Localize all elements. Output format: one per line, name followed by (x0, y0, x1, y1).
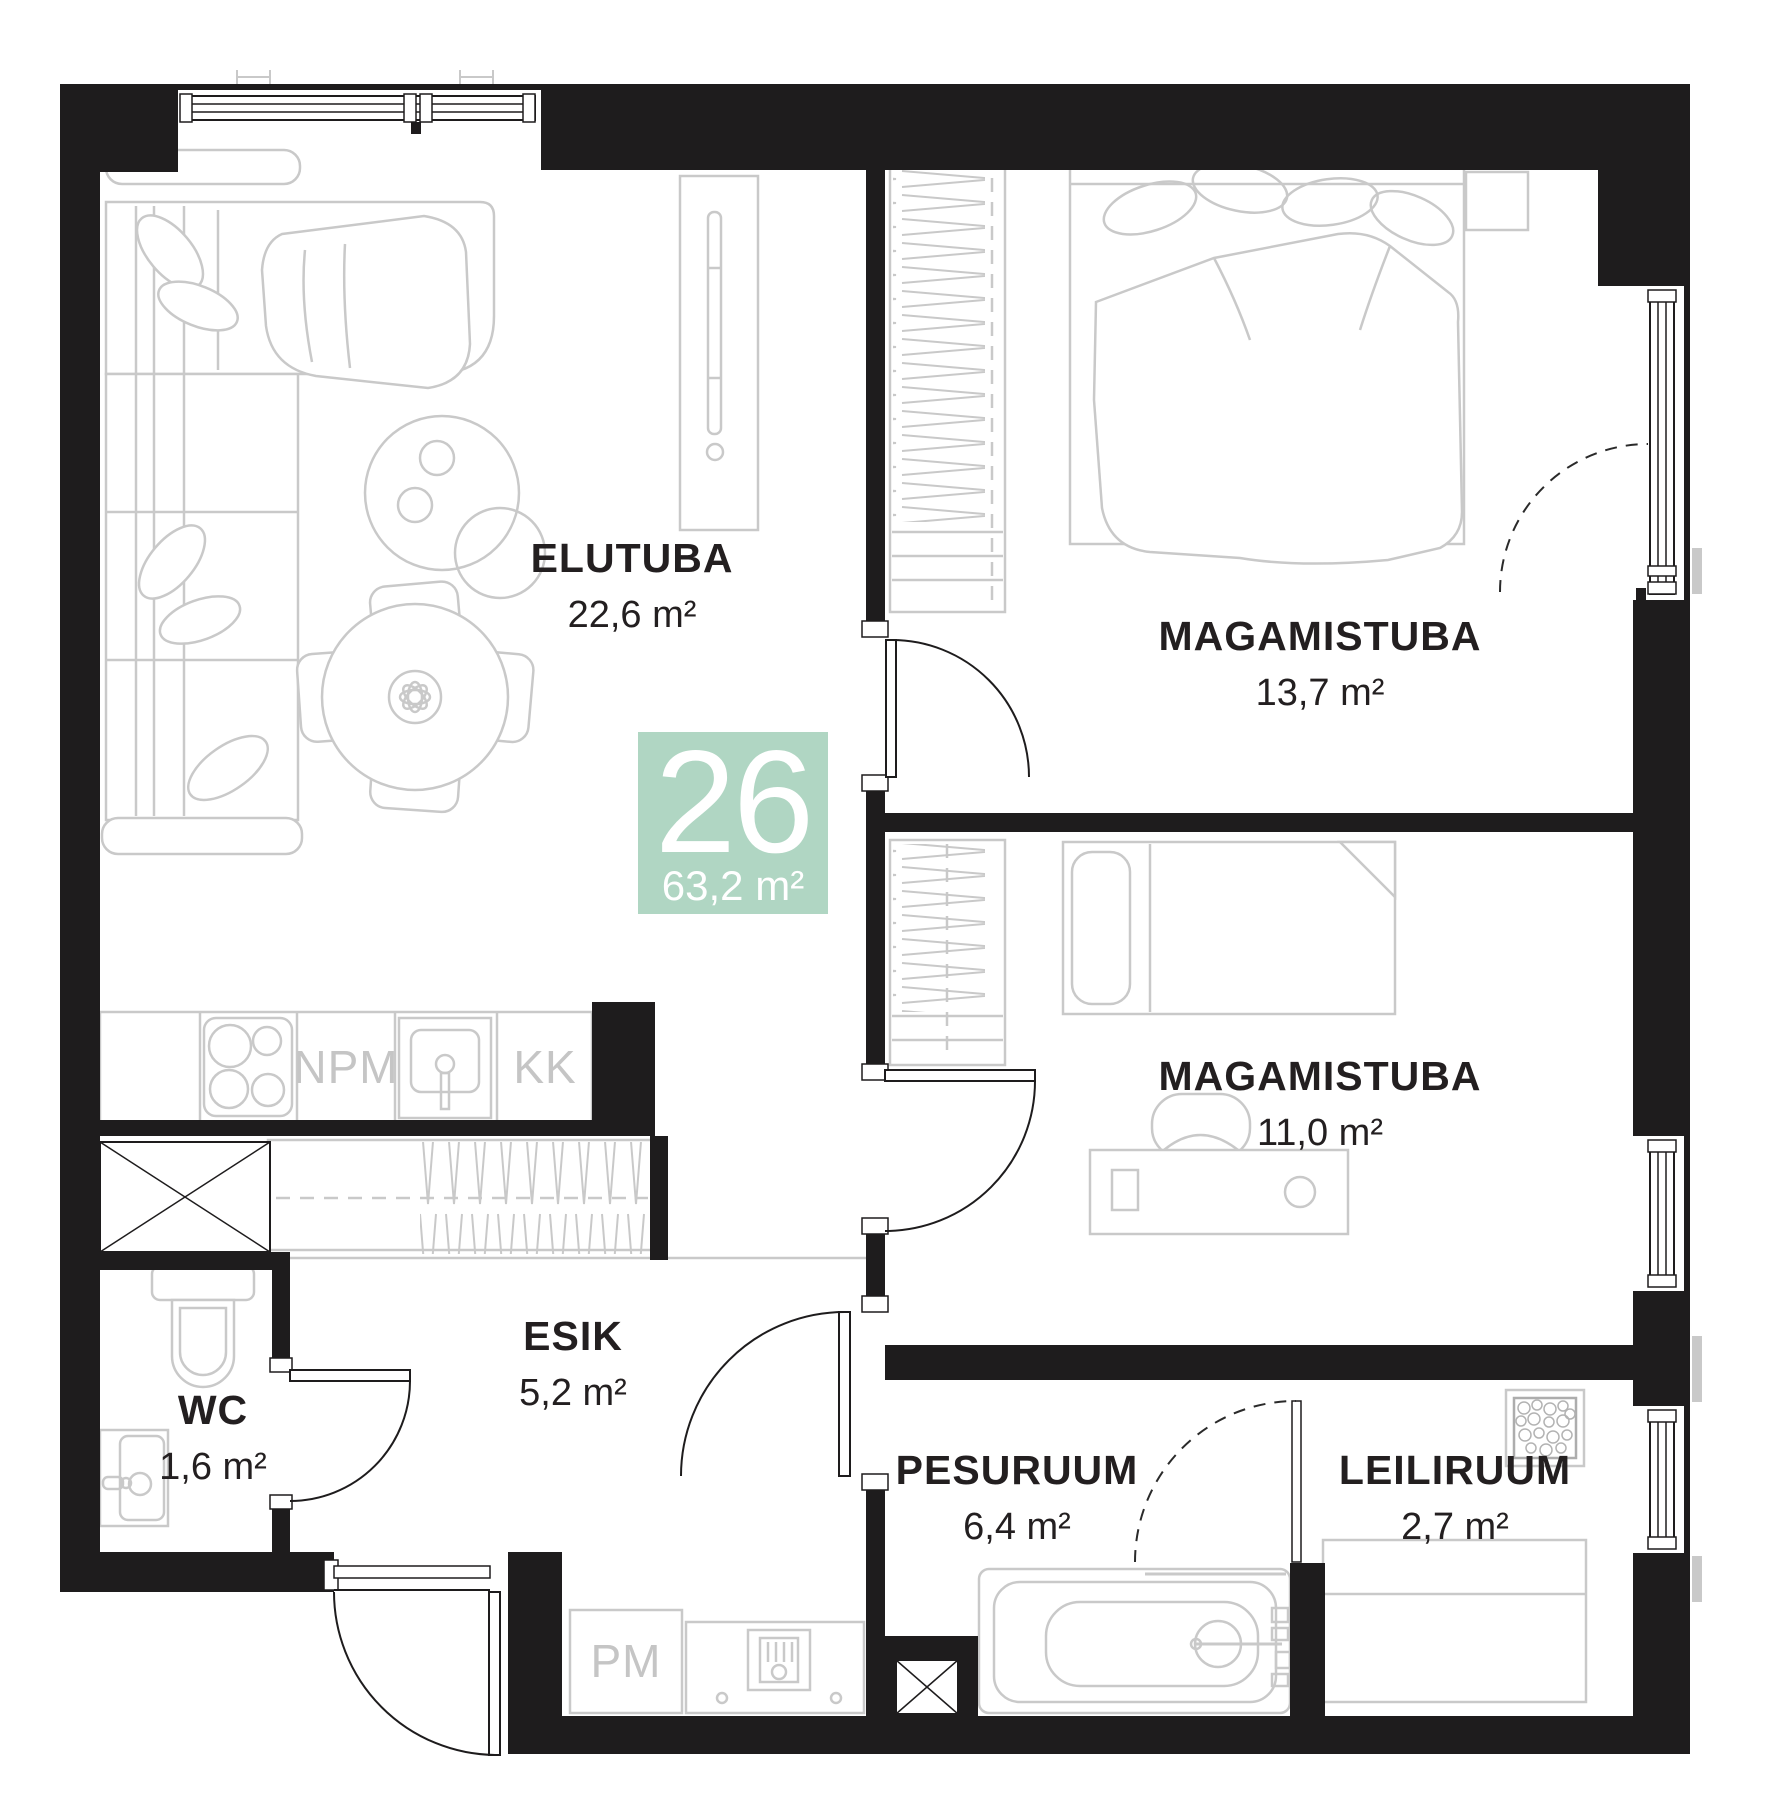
room-area: 5,2 m² (519, 1374, 627, 1412)
room-label-elutuba: ELUTUBA 22,6 m² (531, 538, 734, 634)
bed-bedroom-2 (1063, 842, 1395, 1014)
room-area: 22,6 m² (531, 596, 734, 634)
room-label-wc: WC 1,6 m² (159, 1390, 267, 1486)
door-bedroom-1 (886, 640, 1029, 777)
dining-table (296, 580, 535, 813)
wall-center-b (866, 777, 885, 1080)
wardrobe-bedroom-1 (890, 150, 1005, 612)
room-name: ESIK (519, 1316, 627, 1357)
room-area: 6,4 m² (896, 1508, 1139, 1546)
room-name: MAGAMISTUBA (1158, 616, 1481, 657)
wardrobe-bedroom-2 (890, 840, 1005, 1065)
exterior-wall-stubs (1692, 548, 1702, 1602)
wall-wetroom-divider (885, 1345, 1633, 1380)
room-label-leiliruum: LEILIRUUM 2,7 m² (1339, 1450, 1571, 1546)
wall-bottom-left (60, 1552, 334, 1592)
wall-right-b (1633, 1291, 1690, 1406)
wall-left (60, 84, 100, 1592)
wall-center-d (866, 1476, 885, 1636)
room-name: MAGAMISTUBA (1158, 1056, 1481, 1097)
wall-wc-right-a (272, 1270, 290, 1364)
room-area: 1,6 m² (159, 1448, 267, 1486)
unit-badge: 26 63,2 m² (638, 732, 828, 914)
door-entrance (334, 1566, 500, 1755)
wall-center-a (866, 170, 885, 635)
balcony-door-handle (1636, 588, 1646, 602)
hall-closet (268, 1140, 652, 1258)
fixture-label-pm: PM (591, 1634, 662, 1688)
wc-basin (100, 1430, 168, 1526)
room-area: 11,0 m² (1158, 1114, 1481, 1152)
wall-wc-top (60, 1252, 290, 1270)
room-label-pesuruum: PESURUUM 6,4 m² (896, 1450, 1139, 1546)
door-balcony-swing (1500, 444, 1648, 592)
wall-kitchen-stub (592, 1002, 655, 1136)
wall-bottom (508, 1716, 1690, 1754)
window-bedroom-1 (1636, 286, 1690, 602)
unit-number: 26 (638, 742, 828, 862)
door-bedroom-2 (885, 1070, 1035, 1231)
room-name: ELUTUBA (531, 538, 734, 579)
wall-closet-right (650, 1136, 668, 1260)
room-label-magamistuba-1: MAGAMISTUBA 13,7 m² (1158, 616, 1481, 712)
wall-sauna-partition (1290, 1563, 1325, 1716)
fixture-label-npm: NPM (293, 1040, 398, 1094)
room-area: 2,7 m² (1339, 1508, 1571, 1546)
door-wc (290, 1370, 410, 1501)
window-living-room (176, 84, 541, 134)
door-esik (681, 1312, 850, 1476)
unit-total-area: 63,2 m² (638, 865, 828, 907)
wall-entrance-corner (508, 1552, 562, 1720)
window-bedroom-2 (1648, 1136, 1690, 1291)
room-area: 13,7 m² (1158, 674, 1481, 712)
bed-bedroom-1 (1070, 150, 1528, 564)
door-sauna (1135, 1401, 1301, 1562)
fixture-label-kk: KK (513, 1040, 576, 1094)
room-label-esik: ESIK 5,2 m² (519, 1316, 627, 1412)
wall-top-left-corner (60, 84, 178, 172)
coffee-table (365, 416, 545, 598)
window-sauna (1648, 1406, 1690, 1553)
sofa-blanket (262, 216, 470, 388)
toilet (152, 1266, 254, 1387)
vent-marks (237, 70, 493, 84)
bathtub (979, 1569, 1290, 1713)
room-name: LEILIRUUM (1339, 1450, 1571, 1491)
floorplan-canvas: ELUTUBA 22,6 m² MAGAMISTUBA 13,7 m² MAGA… (0, 0, 1772, 1809)
bedside-table (1466, 172, 1528, 230)
wall-top (541, 84, 1690, 170)
bathroom-vanity (686, 1622, 864, 1713)
bed-blanket (1094, 233, 1462, 563)
room-name: WC (159, 1390, 267, 1431)
wall-under-counter (60, 1120, 290, 1136)
room-label-magamistuba-2: MAGAMISTUBA 11,0 m² (1158, 1056, 1481, 1152)
sauna-bench (1323, 1540, 1586, 1702)
room-name: PESURUUM (896, 1450, 1139, 1491)
wall-right-a (1633, 600, 1690, 1136)
wall-top-right-step (1598, 170, 1690, 286)
tv-cabinet (680, 176, 758, 530)
wall-bedroom-divider (885, 813, 1633, 832)
wall-closet-top (290, 1120, 655, 1136)
